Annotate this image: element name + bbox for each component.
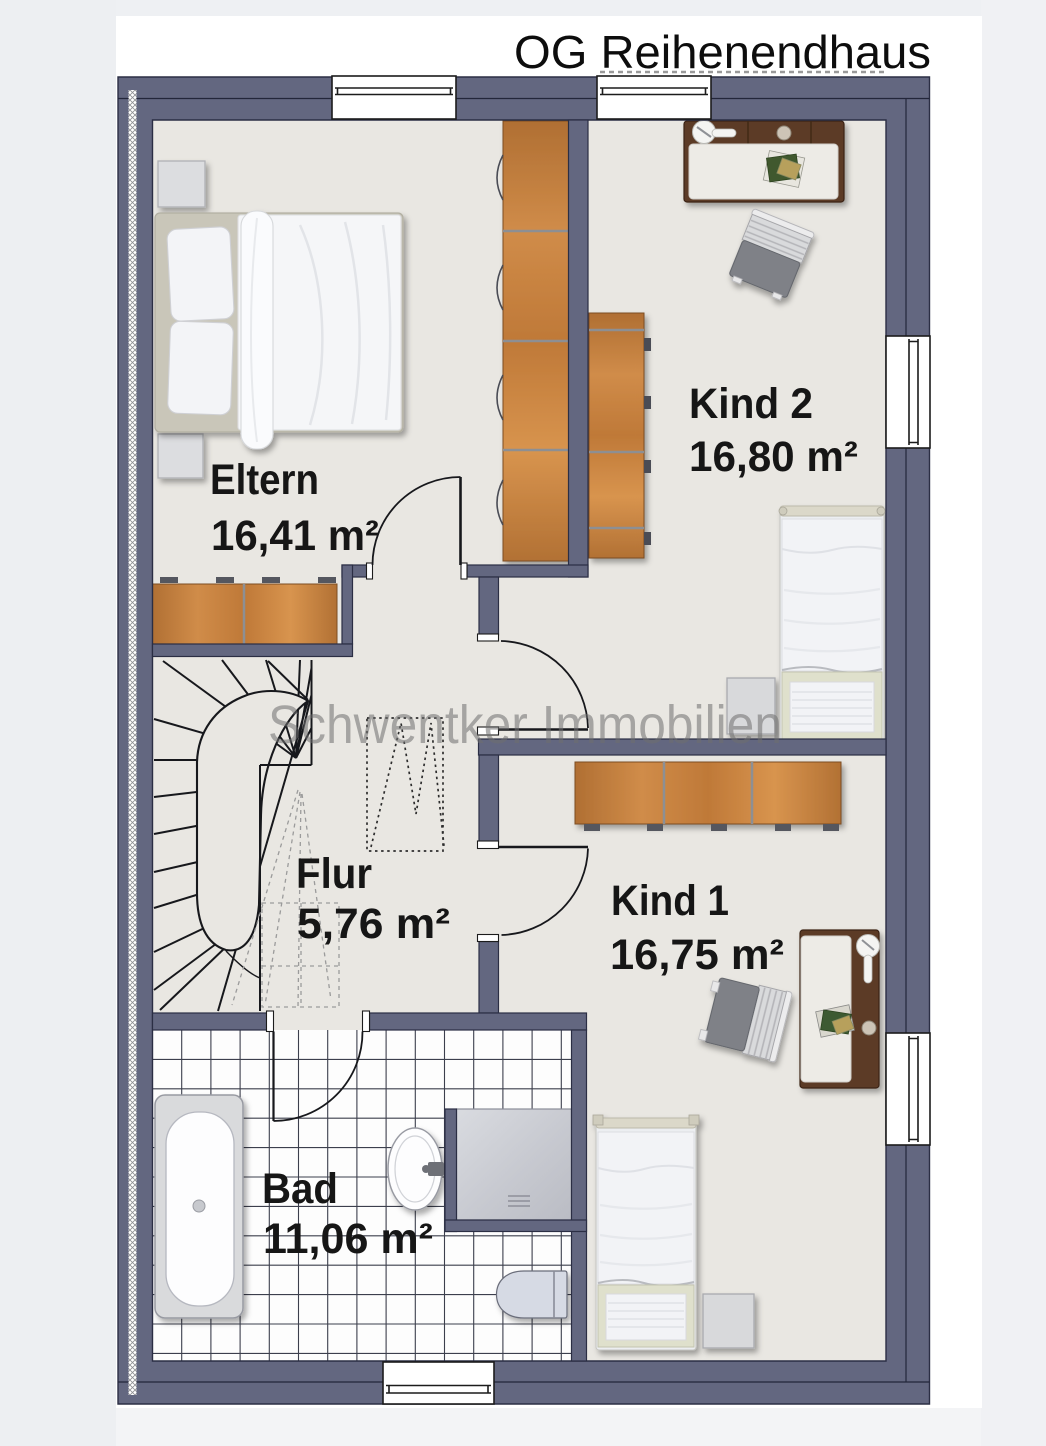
svg-text:OG Reihenendhaus: OG Reihenendhaus <box>514 26 931 78</box>
svg-text:Flur: Flur <box>296 850 372 898</box>
svg-text:16,41 m²: 16,41 m² <box>211 512 379 560</box>
svg-text:5,76 m²: 5,76 m² <box>297 900 450 948</box>
svg-text:Eltern: Eltern <box>210 456 319 504</box>
svg-text:11,06 m²: 11,06 m² <box>263 1215 433 1263</box>
svg-text:Bad: Bad <box>262 1165 338 1213</box>
svg-text:Schwentker Immobilien: Schwentker Immobilien <box>268 695 782 755</box>
svg-text:16,75 m²: 16,75 m² <box>610 931 784 979</box>
svg-text:16,80 m²: 16,80 m² <box>689 433 858 481</box>
svg-text:Kind 1: Kind 1 <box>611 877 729 925</box>
svg-text:Kind 2: Kind 2 <box>689 380 813 428</box>
